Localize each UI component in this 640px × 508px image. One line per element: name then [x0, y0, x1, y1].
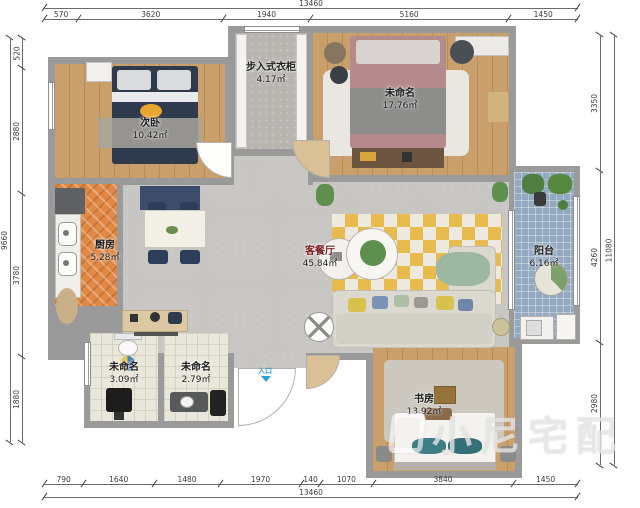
- plant: [492, 182, 508, 202]
- room-name: 客餐厅: [275, 246, 365, 259]
- dim-segment: 1940: [223, 11, 310, 25]
- label-kitchen: 厨房 5.28㎡: [70, 240, 140, 264]
- sofa-seat: [336, 314, 492, 344]
- dresser-item: [402, 152, 412, 162]
- dim-right-total: 11080: [606, 35, 620, 465]
- label-bathroom-b: 未命名 2.79㎡: [166, 362, 226, 386]
- window-balcony: [573, 196, 580, 306]
- washing-machine: [106, 388, 132, 412]
- label-master-bedroom: 未命名 17.76㎡: [350, 88, 450, 112]
- dim-segment: 520: [14, 38, 28, 68]
- bed-cushion: [140, 104, 162, 118]
- balcony-sliding-door: [508, 210, 515, 310]
- pillow: [157, 70, 191, 90]
- dim-left-segments: 520 2880 3780 1880: [14, 38, 28, 442]
- hallway-floor: [234, 156, 308, 190]
- wardrobe: [296, 34, 307, 148]
- dim-segment: 790: [44, 476, 83, 490]
- watermark: 小尼宅配: [390, 404, 624, 462]
- dim-segment: 3840: [373, 476, 513, 490]
- headboard: [394, 462, 496, 470]
- room-area: 2.79㎡: [166, 375, 226, 386]
- label-walkin-closet: 步入式衣柜 4.17㎡: [231, 62, 311, 86]
- room-name: 未命名: [350, 88, 450, 101]
- watermark-logo-icon: [388, 413, 426, 453]
- wash-basin: [180, 396, 194, 408]
- window-secondary-bedroom: [48, 82, 55, 130]
- plant: [548, 174, 572, 194]
- burner-icon: [63, 260, 69, 266]
- console-decor: [150, 312, 160, 322]
- console-cushion: [168, 312, 182, 324]
- room-area: 45.84㎡: [275, 259, 365, 270]
- floor-plan-canvas: 次卧 10.42㎡ 步入式衣柜 4.17㎡ 未命名 17.76㎡ 厨房 5.28…: [0, 0, 640, 508]
- room-area: 3.09㎡: [92, 375, 156, 386]
- table-centerpiece: [166, 226, 178, 234]
- plant: [522, 174, 544, 194]
- dim-top-segments: 570 3620 1940 5160 1450: [44, 11, 578, 25]
- pillow: [458, 299, 473, 311]
- washer-stand: [114, 412, 124, 420]
- stool: [330, 66, 348, 84]
- pillow: [436, 296, 454, 310]
- dim-segment: 13460: [44, 489, 578, 503]
- dim-segment: 1450: [513, 476, 578, 490]
- label-secondary-bedroom: 次卧 10.42㎡: [100, 118, 200, 142]
- plant-pot: [324, 42, 346, 64]
- dining-chair: [148, 250, 168, 264]
- room-name: 厨房: [70, 240, 140, 253]
- entry-label: 入口: [258, 366, 272, 376]
- cabinet: [556, 314, 576, 340]
- hallway-floor-strip: [313, 182, 509, 190]
- pillow: [117, 70, 151, 90]
- room-area: 17.76㎡: [350, 101, 450, 112]
- dim-segment: 1480: [154, 476, 220, 490]
- throw-blanket: [436, 252, 490, 286]
- decor-plant: [56, 288, 78, 324]
- room-area: 5.28㎡: [70, 253, 140, 264]
- entry-arrow-icon: [261, 376, 271, 382]
- dining-chair: [180, 250, 200, 264]
- sink-drain-icon: [63, 230, 69, 236]
- dim-segment: 3620: [78, 11, 223, 25]
- window-closet: [244, 26, 300, 33]
- pillow: [348, 298, 366, 312]
- label-bathroom-a: 未命名 3.09㎡: [92, 362, 156, 386]
- dim-bottom-total: 13460: [44, 489, 578, 503]
- appliance: [210, 390, 226, 416]
- room-name: 阳台: [516, 246, 572, 259]
- dim-segment: 1640: [83, 476, 154, 490]
- side-table: [450, 40, 474, 64]
- console-decor: [130, 314, 138, 322]
- room-area: 6.16㎡: [516, 259, 572, 270]
- watermark-text: 小尼宅配: [432, 404, 624, 462]
- wardrobe: [236, 34, 247, 148]
- room-area: 4.17㎡: [231, 75, 311, 86]
- pillow: [394, 295, 409, 307]
- bed-fold: [112, 92, 198, 102]
- dim-segment: 1070: [320, 476, 373, 490]
- dim-segment: 3780: [14, 194, 28, 357]
- nightstand: [86, 62, 112, 82]
- basket: [492, 318, 510, 336]
- room-name: 未命名: [92, 362, 156, 375]
- door-arc-study: [306, 355, 340, 389]
- decor-figure: [534, 192, 546, 206]
- plant: [316, 184, 334, 206]
- console-shadow: [134, 332, 178, 336]
- dim-segment: 570: [44, 11, 78, 25]
- plant-pot: [558, 200, 568, 210]
- label-living-dining: 客餐厅 45.84㎡: [275, 246, 365, 270]
- window-bathroom: [84, 342, 91, 386]
- dim-segment: 2880: [14, 68, 28, 194]
- dim-segment: 1450: [508, 11, 578, 25]
- toilet: [118, 340, 138, 356]
- pillow: [372, 296, 388, 309]
- dim-segment: 11080: [606, 35, 620, 465]
- fridge: [55, 188, 85, 214]
- room-area: 10.42㎡: [100, 131, 200, 142]
- pillow: [356, 40, 440, 64]
- room-name: 步入式衣柜: [231, 62, 311, 75]
- floor-mat: [488, 92, 508, 122]
- room-name: 未命名: [166, 362, 226, 375]
- dim-segment: 5160: [310, 11, 509, 25]
- room-name: 次卧: [100, 118, 200, 131]
- dim-segment: 1970: [220, 476, 301, 490]
- sink-basin: [526, 320, 542, 336]
- dresser-item: [360, 152, 376, 161]
- pillow: [414, 297, 428, 308]
- label-balcony: 阳台 6.16㎡: [516, 246, 572, 270]
- dim-segment: 3350: [592, 35, 606, 171]
- dim-segment: 1880: [14, 357, 28, 442]
- ceiling-fan-icon: [304, 312, 334, 342]
